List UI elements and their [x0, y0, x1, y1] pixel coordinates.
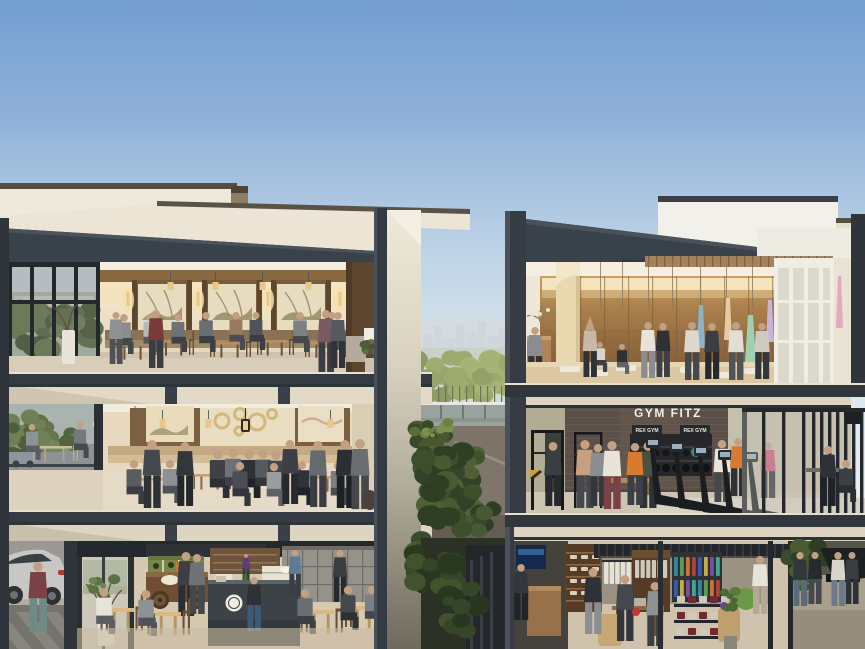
svg-text:GYM FITZ: GYM FITZ: [634, 406, 702, 420]
svg-text:REX GYM: REX GYM: [683, 428, 706, 434]
svg-text:REX GYM: REX GYM: [635, 428, 658, 434]
